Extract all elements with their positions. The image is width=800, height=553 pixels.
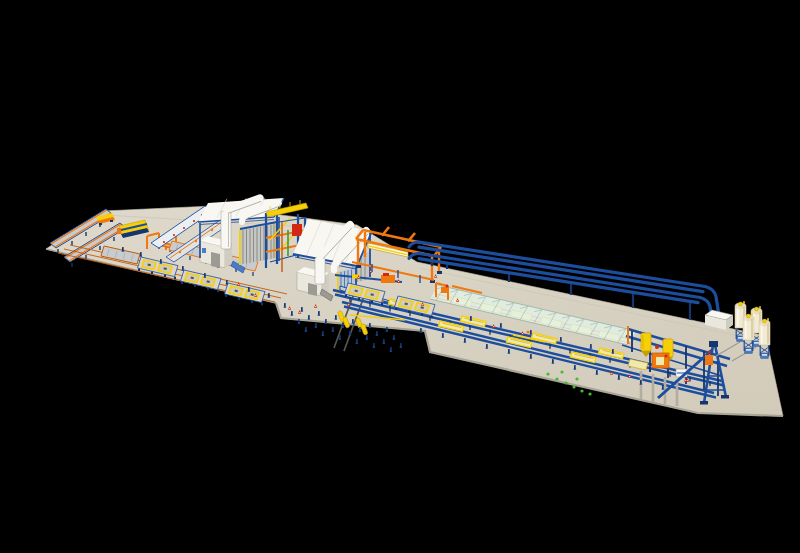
factory-scene[interactable]: isometric 3d render of an aac block plan… (0, 0, 800, 553)
annex-door (211, 252, 220, 268)
louver-wall (239, 222, 277, 265)
annex-door (308, 283, 317, 296)
render-viewport[interactable]: isometric 3d render of an aac block plan… (0, 0, 800, 553)
hoist-unit (292, 224, 302, 236)
gallery-end-machine (441, 287, 448, 293)
pouring-mixer (652, 353, 669, 368)
small-machine (381, 275, 395, 283)
